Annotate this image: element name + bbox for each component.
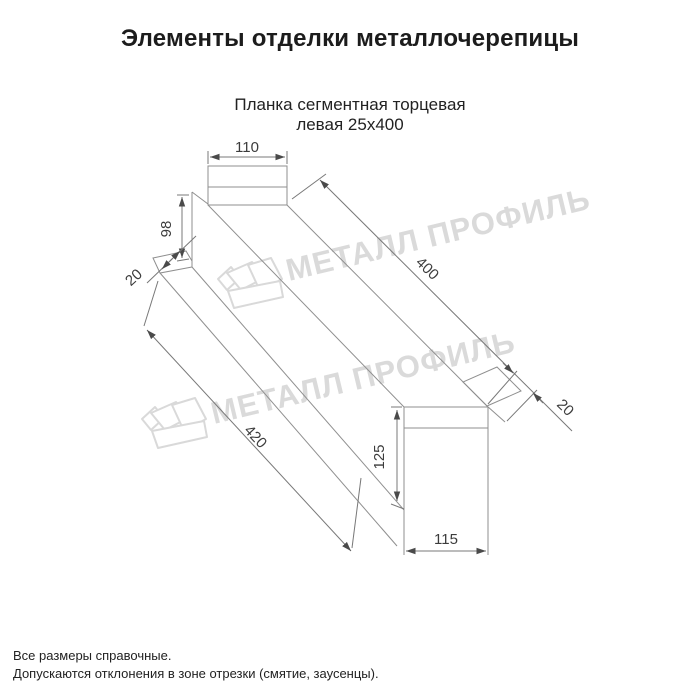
- left-end-fold-tab: [153, 251, 192, 273]
- page-title: Элементы отделки металлочерепицы: [0, 25, 700, 53]
- right-end-fold-tab-edge: [487, 406, 505, 422]
- footer-notes: Все размеры справочные. Допускаются откл…: [13, 647, 379, 683]
- dimension-label-125: 125: [371, 444, 388, 469]
- drawing-page: Элементы отделки металлочерепицы Планка …: [0, 0, 700, 700]
- dimension-left-end-fold: 20: [122, 236, 196, 290]
- footer-note-line2: Допускаются отклонения в зоне отрезки (с…: [13, 665, 379, 683]
- watermark-logo-lower: [142, 398, 207, 448]
- dimension-top-flange-width: 110: [208, 139, 287, 164]
- dimension-label-110: 110: [235, 139, 259, 156]
- dimension-right-end-fold: 20: [488, 371, 577, 421]
- dimension-label-20-left: 20: [122, 266, 146, 290]
- dimension-label-400: 400: [412, 254, 442, 284]
- part-subtitle: Планка сегментная торцевая левая 25х400: [0, 95, 700, 135]
- dimension-right-end-height: 125: [371, 407, 404, 509]
- watermark-text-lower: МЕТАЛЛ ПРОФИЛЬ: [207, 324, 518, 431]
- footer-note-line1: Все размеры справочные.: [13, 647, 379, 665]
- dimension-bottom-flange-width: 115: [406, 531, 486, 551]
- dimension-label-115: 115: [434, 531, 458, 548]
- top-flange-face: [208, 166, 287, 205]
- part-subtitle-line1: Планка сегментная торцевая: [0, 95, 700, 115]
- part-subtitle-line2: левая 25х400: [0, 115, 700, 135]
- left-end-top-connector: [192, 192, 208, 204]
- dimension-label-420: 420: [241, 422, 271, 452]
- dimension-label-98: 98: [158, 221, 175, 238]
- watermark-layer: МЕТАЛЛ ПРОФИЛЬ МЕТАЛЛ ПРОФИЛЬ: [142, 181, 594, 448]
- watermark-logo-upper: [218, 258, 283, 308]
